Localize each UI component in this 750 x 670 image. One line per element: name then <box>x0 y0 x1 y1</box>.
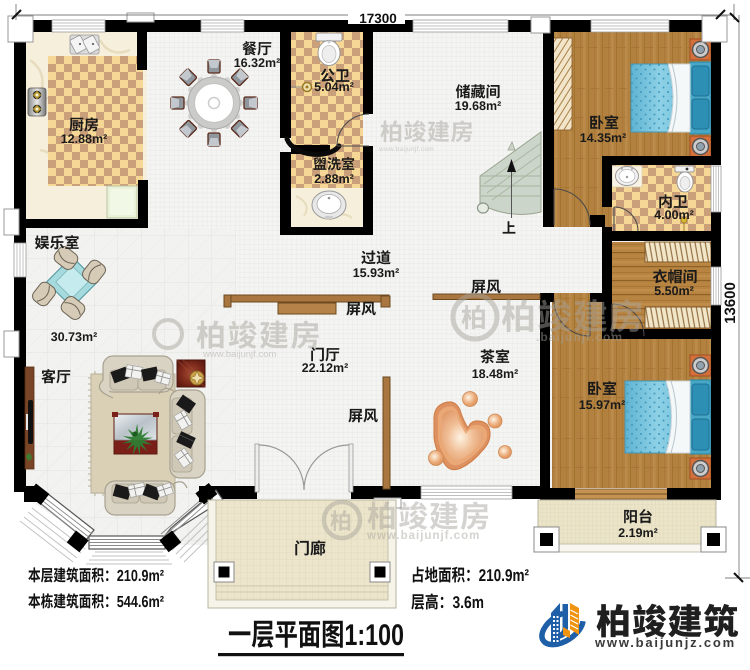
svg-text:www.baijunjf.com: www.baijunjf.com <box>366 530 480 542</box>
svg-text:www.baijunjf.com: www.baijunjf.com <box>202 349 276 360</box>
svg-text:.baijunjf.com: .baijunjf.com <box>536 330 623 344</box>
svg-text:www.baijunjf.com: www.baijunjf.com <box>378 146 434 153</box>
svg-text:www.baijunjz.com: www.baijunjz.com <box>594 635 736 650</box>
